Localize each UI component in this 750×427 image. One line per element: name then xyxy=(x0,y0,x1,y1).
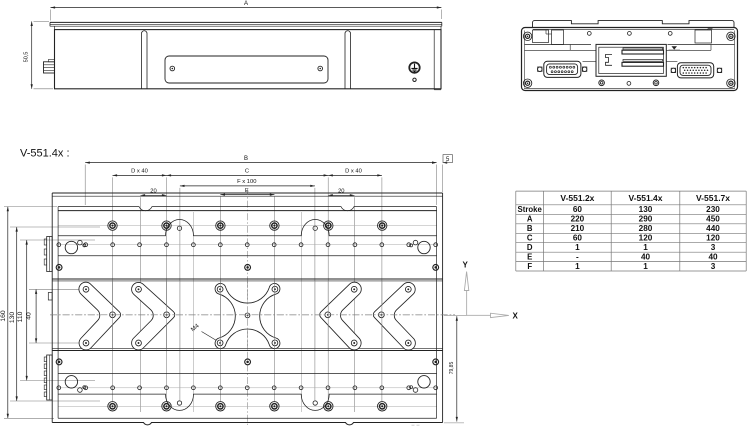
svg-text:290: 290 xyxy=(639,215,653,224)
svg-text:40: 40 xyxy=(708,253,718,262)
svg-text:160: 160 xyxy=(0,310,7,322)
svg-text:60: 60 xyxy=(573,234,583,243)
svg-text:F x 100: F x 100 xyxy=(237,179,256,185)
svg-text:3: 3 xyxy=(711,262,716,271)
svg-text:60: 60 xyxy=(573,205,583,214)
svg-text:110: 110 xyxy=(17,311,24,322)
svg-text:220: 220 xyxy=(571,215,585,224)
svg-text:X: X xyxy=(513,312,519,321)
svg-text:50,5: 50,5 xyxy=(24,52,30,63)
svg-text:Y: Y xyxy=(463,261,469,270)
svg-text:40: 40 xyxy=(26,312,33,320)
svg-text:D x 40: D x 40 xyxy=(345,169,362,175)
svg-text:V-551.4x :: V-551.4x : xyxy=(20,147,70,159)
svg-text:1: 1 xyxy=(643,262,648,271)
svg-text:280: 280 xyxy=(639,224,653,233)
svg-text:C: C xyxy=(527,234,533,243)
svg-text:Stroke: Stroke xyxy=(518,205,543,214)
svg-text:120: 120 xyxy=(639,234,653,243)
svg-text:130: 130 xyxy=(639,205,653,214)
svg-text:B: B xyxy=(244,156,248,162)
svg-text:1: 1 xyxy=(643,243,648,252)
svg-text:B: B xyxy=(527,224,533,233)
svg-text:79,85: 79,85 xyxy=(449,362,455,375)
svg-text:A: A xyxy=(244,1,248,7)
svg-text:D: D xyxy=(527,243,533,252)
svg-text:A: A xyxy=(527,215,533,224)
svg-text:1: 1 xyxy=(575,262,580,271)
svg-text:V-551.7x: V-551.7x xyxy=(696,193,730,203)
svg-text:1: 1 xyxy=(575,243,580,252)
svg-text:40: 40 xyxy=(641,253,651,262)
svg-text:120: 120 xyxy=(706,234,720,243)
svg-text:C: C xyxy=(245,169,249,175)
svg-text:F: F xyxy=(527,262,532,271)
svg-text:440: 440 xyxy=(706,224,720,233)
svg-text:-: - xyxy=(576,253,579,262)
svg-text:130: 130 xyxy=(9,312,16,324)
svg-text:E: E xyxy=(527,253,532,262)
svg-text:210: 210 xyxy=(571,224,585,233)
svg-text:V-551.2x: V-551.2x xyxy=(560,193,594,203)
svg-text:V-551.4x: V-551.4x xyxy=(628,193,662,203)
svg-text:230: 230 xyxy=(706,205,720,214)
svg-text:450: 450 xyxy=(706,215,720,224)
svg-text:3: 3 xyxy=(711,243,716,252)
svg-text:D x 40: D x 40 xyxy=(131,169,148,175)
